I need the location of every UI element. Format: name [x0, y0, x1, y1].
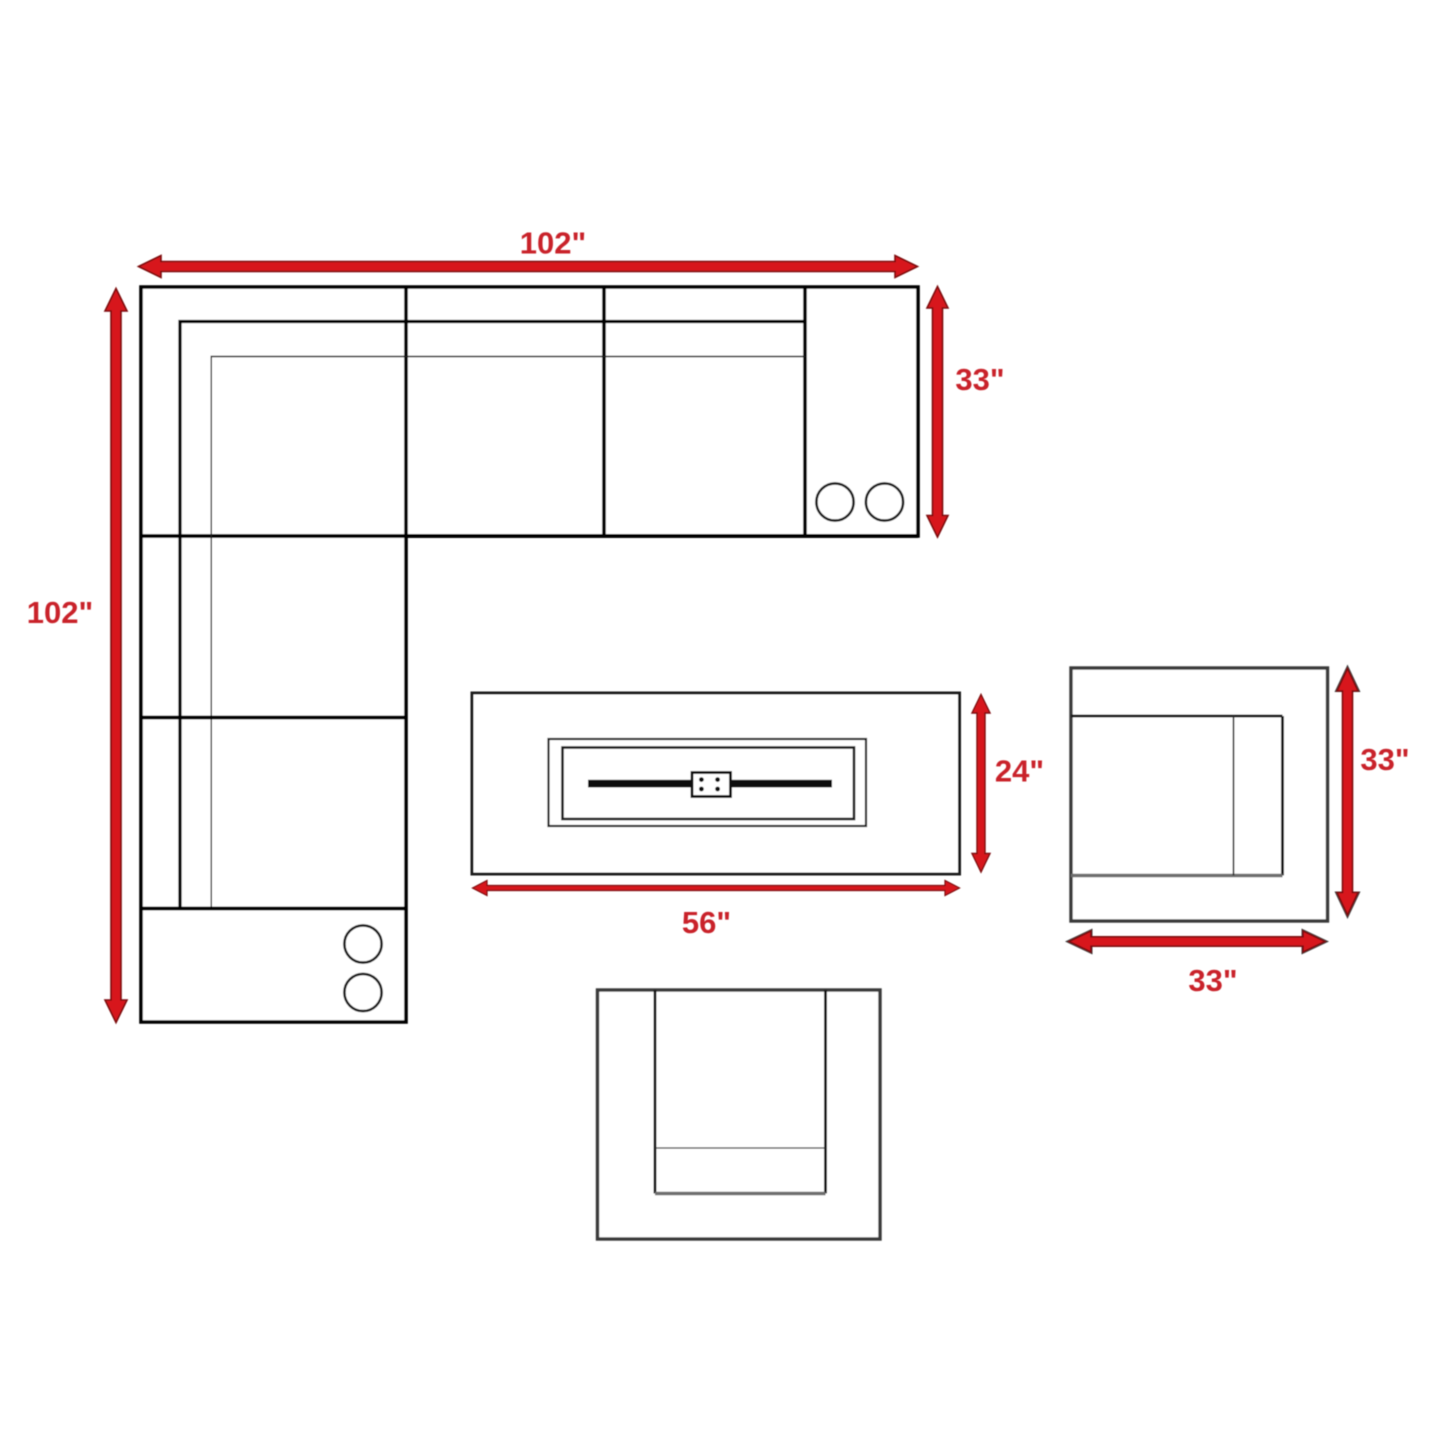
svg-text:102": 102": [27, 595, 93, 630]
svg-text:102": 102": [520, 226, 586, 261]
svg-text:24": 24": [995, 754, 1044, 789]
svg-text:56": 56": [682, 905, 731, 940]
svg-text:33": 33": [1360, 742, 1409, 777]
svg-text:33": 33": [1188, 963, 1237, 998]
svg-text:33": 33": [955, 362, 1004, 397]
